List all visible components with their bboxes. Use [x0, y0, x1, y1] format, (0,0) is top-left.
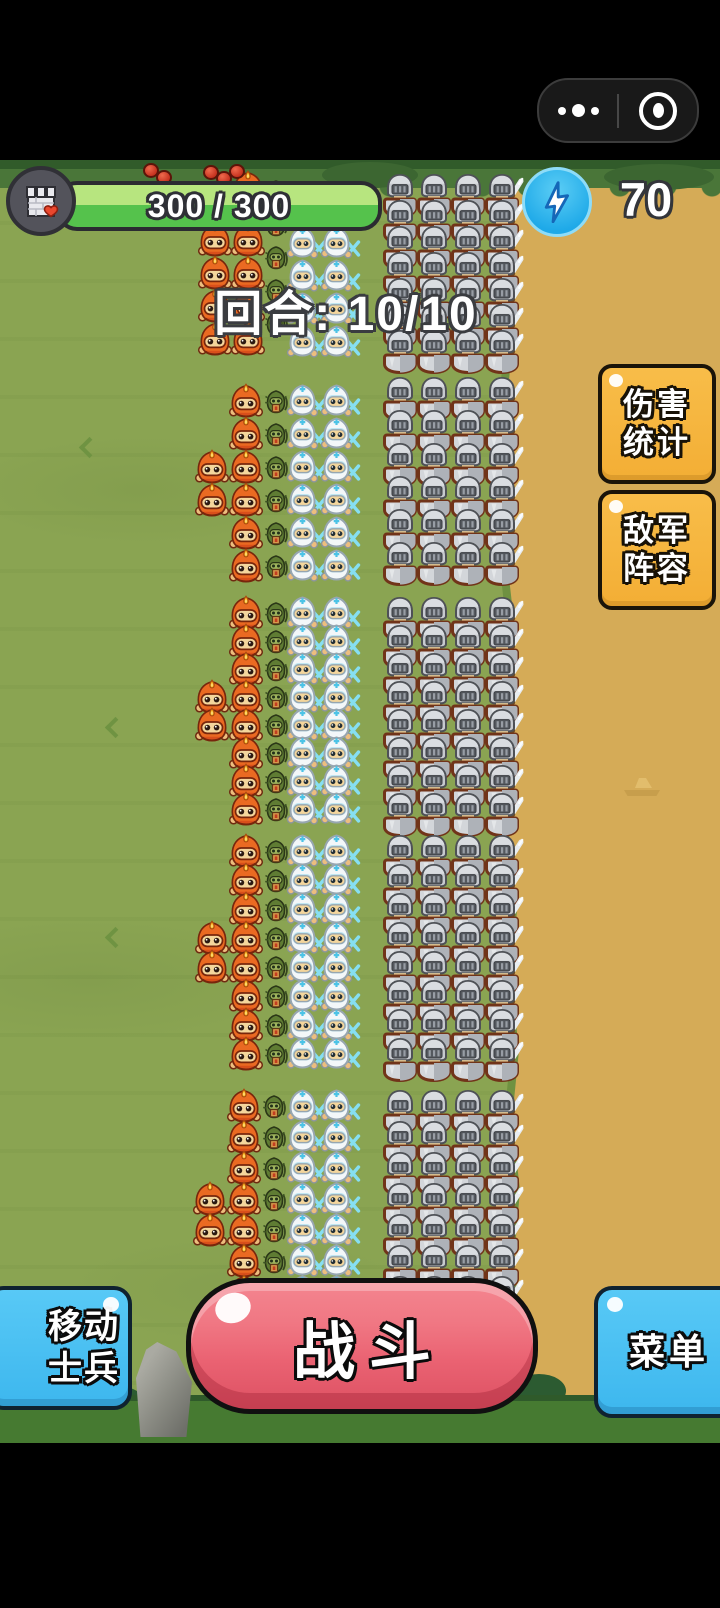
button-shine — [609, 374, 623, 387]
energy-badge — [522, 167, 592, 237]
berry-decor — [229, 164, 245, 179]
damage-stats-label-line1: 伤害 — [623, 386, 691, 424]
round-counter: 回合: 10/10 — [0, 274, 692, 344]
enemy-lineup-label-line1: 敌军 — [623, 512, 691, 550]
menu-label: 菜单 — [629, 1331, 709, 1373]
battle-label: 战斗 — [279, 1301, 445, 1391]
stone-decor — [620, 778, 664, 798]
damage-stats-button[interactable]: 伤害 统计 — [598, 364, 716, 484]
health-value: 300 / 300 — [148, 188, 290, 225]
enemy-lineup-button[interactable]: 敌军 阵容 — [598, 490, 716, 610]
castle-icon — [18, 178, 64, 224]
ellipsis-icon — [558, 104, 599, 117]
more-button[interactable] — [539, 80, 617, 141]
move-soldiers-label-line2: 士兵 — [48, 1348, 120, 1390]
button-shine — [607, 1297, 623, 1312]
lightning-icon — [538, 181, 576, 223]
button-shine — [103, 1297, 119, 1312]
button-shine — [609, 500, 623, 513]
button-shine — [211, 1288, 255, 1328]
move-soldiers-label-line1: 移动 — [48, 1306, 120, 1348]
move-soldiers-button[interactable]: 移动 士兵 — [0, 1286, 132, 1410]
enemy-lineup-label-line2: 阵容 — [623, 550, 691, 588]
game-screen: 300 / 300 70 回合: 10/10 伤害 统计 敌军 阵容 移动 士兵… — [0, 0, 720, 1608]
energy-value: 70 — [600, 172, 692, 227]
castle-health-bar: 300 / 300 — [56, 181, 382, 231]
battle-button[interactable]: 战斗 — [186, 1278, 538, 1414]
damage-stats-label-line2: 统计 — [623, 424, 691, 462]
miniprogram-capsule — [537, 78, 699, 143]
castle-health-icon — [6, 166, 76, 236]
battlefield — [0, 160, 720, 1443]
record-circle-icon — [639, 92, 677, 130]
status-bar-bottom — [0, 1443, 720, 1608]
menu-button[interactable]: 菜单 — [594, 1286, 720, 1418]
minimize-button[interactable] — [619, 80, 697, 141]
